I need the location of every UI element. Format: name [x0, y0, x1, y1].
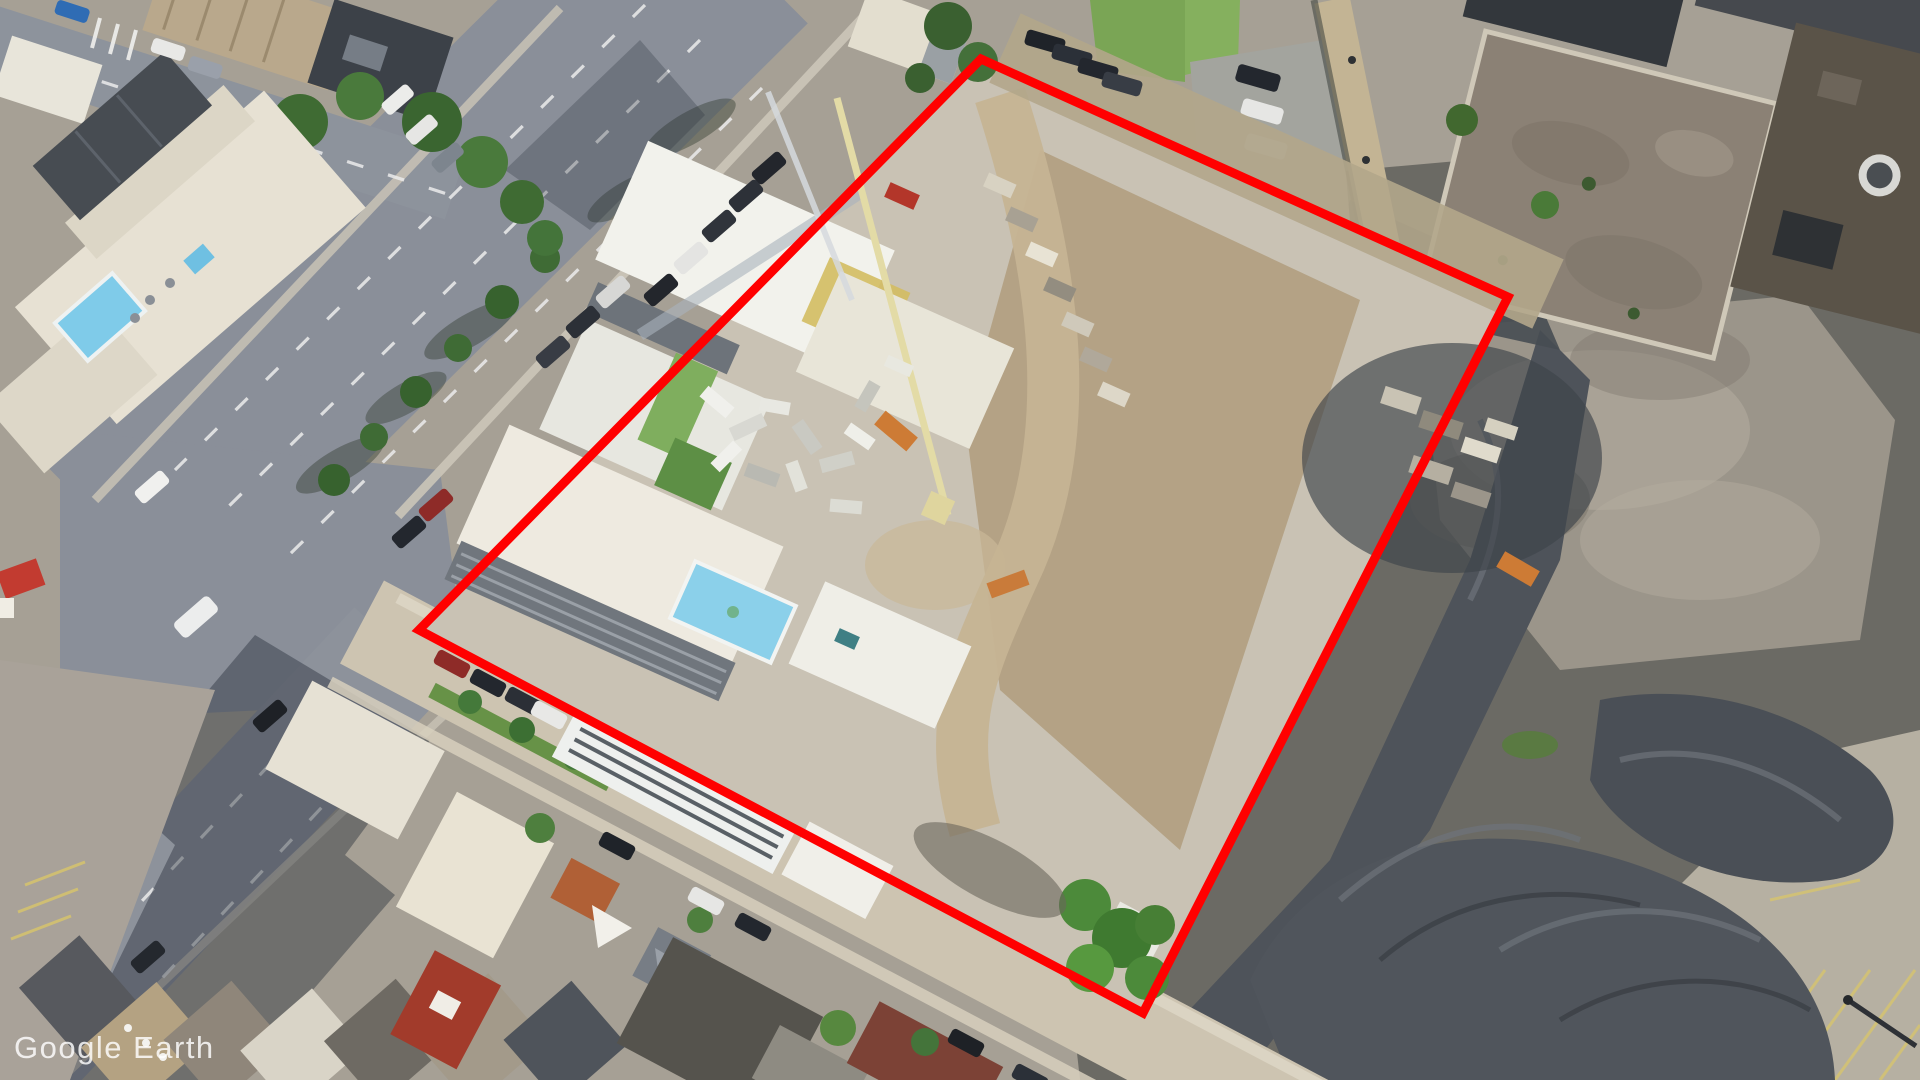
satellite-map-canvas[interactable]: Google Earth	[0, 0, 1920, 1080]
terrace-item	[130, 313, 140, 323]
terrace-item	[165, 278, 175, 288]
yard-tree	[525, 813, 555, 843]
pool-logo	[727, 606, 739, 618]
weed-patch	[1502, 731, 1558, 759]
terrace-item	[145, 295, 155, 305]
awning-stripe	[0, 598, 14, 618]
post	[1362, 156, 1370, 164]
yard-tree	[911, 1028, 939, 1056]
slab-light-patch	[1580, 480, 1820, 600]
street-tree	[509, 717, 535, 743]
street-tree	[458, 690, 482, 714]
tree	[905, 63, 935, 93]
yard-tree	[820, 1010, 856, 1046]
tree	[1446, 104, 1478, 136]
post	[1348, 56, 1356, 64]
tree	[1531, 191, 1559, 219]
tree	[924, 2, 972, 50]
stockpile-shadow-ground	[1302, 343, 1602, 573]
google-earth-viewport: Google Earth	[0, 0, 1920, 1080]
google-earth-watermark: Google Earth	[14, 1030, 215, 1065]
